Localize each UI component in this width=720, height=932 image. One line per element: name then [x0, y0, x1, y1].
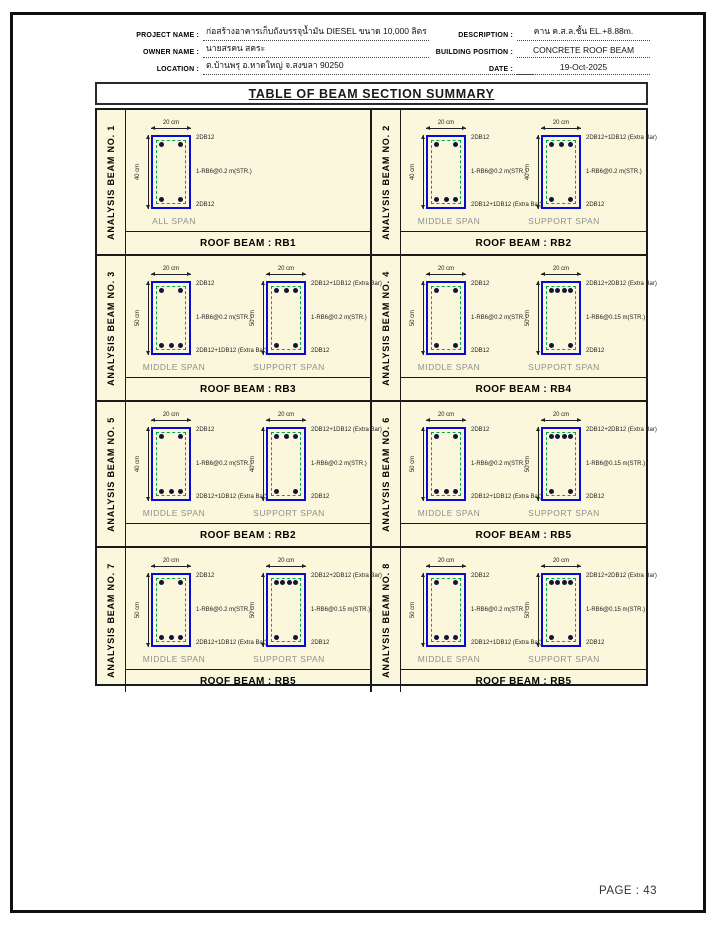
concrete-section-outline [426, 427, 466, 501]
building-position-label: BUILDING POSITION : [425, 49, 517, 58]
beam-cell-main: 20 cm 50 cm 2DB12 1-RB6@0.2 m(STR.) 2DB1… [126, 548, 370, 692]
rebar-dot [274, 635, 279, 640]
beam-section-drawing: 20 cm 50 cm 2DB12 1-RB6@0.2 m(STR.) 2DB1… [415, 411, 530, 523]
height-dim-arrow [538, 573, 539, 647]
beam-section-drawing: 20 cm 50 cm 2DB12 1-RB6@0.2 m(STR.) 2DB1… [140, 557, 255, 669]
height-dimension: 50 cm [253, 281, 265, 355]
stirrup-dashed-outline [156, 286, 186, 350]
rebar-dot [453, 288, 458, 293]
concrete-section-outline [426, 281, 466, 355]
rebar-dot [549, 142, 554, 147]
rebar-dot [178, 343, 183, 348]
top-rebar-label: 2DB12 [471, 427, 533, 434]
section-annotations: 2DB12 1-RB6@0.2 m(STR.) 2DB12+1DB12 (Ext… [196, 281, 258, 355]
bottom-rebar-dots [159, 343, 183, 348]
rebar-dot [549, 489, 554, 494]
bottom-rebar-label: 2DB12 [586, 494, 648, 501]
top-rebar-label: 2DB12+2DB12 (Extra Bar) [586, 573, 648, 580]
concrete-section-outline [151, 427, 191, 501]
stirrup-dashed-outline [431, 140, 461, 204]
sections-area: 20 cm 40 cm 2DB12 1-RB6@0.2 m(STR.) 2DB1… [126, 402, 370, 523]
width-dim-arrow [426, 566, 466, 567]
beam-cell-main: 20 cm 50 cm 2DB12 1-RB6@0.2 m(STR.) 2DB1… [126, 256, 370, 400]
rebar-dot [159, 635, 164, 640]
stirrup-label: 1-RB6@0.2 m(STR.) [471, 315, 533, 322]
beam-cell-main: 20 cm 40 cm 2DB12 1-RB6@0.2 m(STR.) 2DB1… [126, 110, 370, 254]
rebar-dot [434, 197, 439, 202]
rebar-dot [434, 288, 439, 293]
bottom-rebar-dots [549, 489, 573, 494]
height-dimension: 50 cm [138, 573, 150, 647]
rebar-dot [178, 197, 183, 202]
height-dim-label: 50 cm [250, 602, 256, 618]
width-dim-arrow [151, 566, 191, 567]
sections-area: 20 cm 50 cm 2DB12 1-RB6@0.2 m(STR.) 2DB1… [126, 256, 370, 377]
height-dimension: 50 cm [253, 573, 265, 647]
header-field-row: DESCRIPTION : คาน ค.ส.ล.ชั้น EL.+8.88m. [425, 24, 650, 41]
rebar-dot [274, 489, 279, 494]
width-dim-arrow [541, 274, 581, 275]
top-rebar-label: 2DB12 [196, 573, 258, 580]
beam-cell: ANALYSIS BEAM NO. 8 20 cm 50 cm 2DB12 1-… [372, 548, 646, 692]
rebar-dot [555, 288, 560, 293]
height-dimension: 50 cm [528, 573, 540, 647]
rebar-dot [434, 142, 439, 147]
bottom-rebar-dots [274, 343, 298, 348]
bottom-rebar-label: 2DB12 [471, 348, 533, 355]
span-label: MIDDLE SPAN [403, 654, 495, 664]
stirrup-label: 1-RB6@0.15 m(STR.) [586, 461, 648, 468]
beam-section-drawing: 20 cm 50 cm 2DB12+2DB12 (Extra Bar) 1-RB… [255, 557, 370, 669]
width-dim-label: 20 cm [541, 558, 581, 565]
beam-cell: ANALYSIS BEAM NO. 2 20 cm 40 cm 2DB12 1-… [372, 110, 646, 256]
width-dimension: 20 cm [151, 558, 191, 567]
roof-beam-label: ROOF BEAM : RB3 [200, 384, 296, 395]
date-label: DATE : [425, 66, 517, 75]
height-dimension: 40 cm [138, 427, 150, 501]
rebar-dot [169, 489, 174, 494]
width-dim-arrow [541, 566, 581, 567]
section-annotations: 2DB12 1-RB6@0.2 m(STR.) 2DB12+1DB12 (Ext… [471, 427, 533, 501]
height-dim-arrow [538, 427, 539, 501]
owner-name-label: OWNER NAME : [105, 49, 203, 58]
roof-beam-label: ROOF BEAM : RB4 [476, 384, 572, 395]
width-dimension: 20 cm [541, 120, 581, 129]
span-label: MIDDLE SPAN [403, 216, 495, 226]
width-dim-label: 20 cm [266, 412, 306, 419]
title-box: TABLE OF BEAM SECTION SUMMARY [95, 82, 648, 105]
bottom-rebar-label: 2DB12 [586, 202, 648, 209]
height-dim-label: 40 cm [410, 164, 416, 180]
span-label: MIDDLE SPAN [128, 508, 220, 518]
height-dimension: 50 cm [528, 427, 540, 501]
beam-section-drawing: 20 cm 50 cm 2DB12 1-RB6@0.2 m(STR.) 2DB1… [415, 557, 530, 669]
analysis-beam-label: ANALYSIS BEAM NO. 8 [381, 563, 391, 678]
height-dim-arrow [423, 135, 424, 209]
top-rebar-label: 2DB12+2DB12 (Extra Bar) [586, 427, 648, 434]
rebar-dot [178, 288, 183, 293]
span-label: SUPPORT SPAN [518, 508, 610, 518]
stirrup-dashed-outline [546, 286, 576, 350]
analysis-strip: ANALYSIS BEAM NO. 2 [372, 110, 401, 254]
beam-section-drawing: 20 cm 50 cm 2DB12 1-RB6@0.2 m(STR.) 2DB1… [415, 265, 530, 377]
top-rebar-label: 2DB12+1DB12 (Extra Bar) [311, 427, 373, 434]
concrete-section-outline [266, 281, 306, 355]
beam-cell-main: 20 cm 40 cm 2DB12 1-RB6@0.2 m(STR.) 2DB1… [401, 110, 646, 254]
top-rebar-dots [549, 142, 573, 147]
rebar-dot [568, 142, 573, 147]
bottom-rebar-label: 2DB12+1DB12 (Extra Bar) [196, 640, 258, 647]
top-rebar-label: 2DB12+2DB12 (Extra Bar) [311, 573, 373, 580]
height-dimension: 50 cm [138, 281, 150, 355]
beam-section-drawing: 20 cm 50 cm 2DB12+2DB12 (Extra Bar) 1-RB… [530, 265, 645, 377]
building-position-value: CONCRETE ROOF BEAM [517, 45, 650, 58]
span-label: SUPPORT SPAN [243, 362, 335, 372]
stirrup-label: 1-RB6@0.2 m(STR.) [471, 607, 533, 614]
top-rebar-label: 2DB12 [196, 427, 258, 434]
rebar-dot [293, 343, 298, 348]
width-dim-label: 20 cm [426, 558, 466, 565]
top-rebar-dots [274, 288, 298, 293]
analysis-beam-label: ANALYSIS BEAM NO. 1 [106, 125, 116, 240]
height-dim-arrow [423, 573, 424, 647]
concrete-section-outline [151, 135, 191, 209]
height-dim-arrow [423, 427, 424, 501]
concrete-section-outline [266, 427, 306, 501]
analysis-strip: ANALYSIS BEAM NO. 4 [372, 256, 401, 400]
top-rebar-label: 2DB12+1DB12 (Extra Bar) [586, 135, 648, 142]
width-dimension: 20 cm [266, 558, 306, 567]
beam-section-drawing: 20 cm 50 cm 2DB12+1DB12 (Extra Bar) 1-RB… [255, 265, 370, 377]
analysis-strip: ANALYSIS BEAM NO. 5 [97, 402, 126, 546]
stirrup-label: 1-RB6@0.2 m(STR.) [586, 169, 648, 176]
bottom-rebar-dots [549, 343, 573, 348]
beam-section-drawing: 20 cm 50 cm 2DB12+2DB12 (Extra Bar) 1-RB… [530, 411, 645, 523]
span-label: MIDDLE SPAN [128, 654, 220, 664]
bottom-rebar-label: 2DB12+1DB12 (Extra Bar) [196, 348, 258, 355]
sections-area: 20 cm 40 cm 2DB12 1-RB6@0.2 m(STR.) 2DB1… [401, 110, 646, 231]
beam-section-drawing: 20 cm 40 cm 2DB12 1-RB6@0.2 m(STR.) 2DB1… [140, 411, 255, 523]
width-dim-arrow [541, 420, 581, 421]
rebar-dot [159, 197, 164, 202]
width-dim-arrow [426, 274, 466, 275]
beam-cell: ANALYSIS BEAM NO. 4 20 cm 50 cm 2DB12 1-… [372, 256, 646, 402]
beam-cell: ANALYSIS BEAM NO. 1 20 cm 40 cm 2DB12 1-… [97, 110, 372, 256]
span-label: SUPPORT SPAN [243, 508, 335, 518]
roof-beam-row: ROOF BEAM : RB5 [126, 669, 370, 692]
analysis-beam-label: ANALYSIS BEAM NO. 4 [381, 271, 391, 386]
rebar-dot [568, 434, 573, 439]
rebar-dot [549, 343, 554, 348]
rebar-dot [274, 580, 279, 585]
sections-area: 20 cm 50 cm 2DB12 1-RB6@0.2 m(STR.) 2DB1… [401, 256, 646, 377]
width-dim-label: 20 cm [541, 412, 581, 419]
top-rebar-dots [549, 434, 573, 439]
height-dim-label: 50 cm [410, 602, 416, 618]
height-dim-arrow [148, 573, 149, 647]
height-dim-arrow [263, 281, 264, 355]
page-title: TABLE OF BEAM SECTION SUMMARY [249, 87, 495, 101]
rebar-dot [159, 434, 164, 439]
roof-beam-row: ROOF BEAM : RB2 [126, 523, 370, 546]
rebar-dot [568, 635, 573, 640]
rebar-dot [549, 635, 554, 640]
top-rebar-dots [159, 434, 183, 439]
project-name-label: PROJECT NAME : [105, 32, 203, 41]
stirrup-label: 1-RB6@0.2 m(STR.) [196, 169, 258, 176]
height-dim-label: 40 cm [525, 164, 531, 180]
roof-beam-row: ROOF BEAM : RB4 [401, 377, 646, 400]
width-dim-label: 20 cm [541, 120, 581, 127]
rebar-dot [568, 343, 573, 348]
beam-section-drawing: 20 cm 50 cm 2DB12+2DB12 (Extra Bar) 1-RB… [530, 557, 645, 669]
roof-beam-row: ROOF BEAM : RB5 [401, 669, 646, 692]
span-label: SUPPORT SPAN [518, 216, 610, 226]
roof-beam-label: ROOF BEAM : RB5 [476, 530, 572, 541]
height-dim-arrow [423, 281, 424, 355]
stirrup-dashed-outline [156, 578, 186, 642]
bottom-rebar-label: 2DB12 [586, 640, 648, 647]
bottom-rebar-dots [159, 635, 183, 640]
bottom-rebar-dots [434, 489, 458, 494]
width-dim-arrow [541, 128, 581, 129]
beam-cell: ANALYSIS BEAM NO. 3 20 cm 50 cm 2DB12 1-… [97, 256, 372, 402]
top-rebar-dots [159, 288, 183, 293]
bottom-rebar-label: 2DB12 [586, 348, 648, 355]
stirrup-dashed-outline [271, 286, 301, 350]
stirrup-dashed-outline [431, 432, 461, 496]
analysis-beam-label: ANALYSIS BEAM NO. 3 [106, 271, 116, 386]
top-rebar-dots [274, 580, 298, 585]
width-dimension: 20 cm [426, 412, 466, 421]
top-rebar-dots [159, 142, 183, 147]
stirrup-label: 1-RB6@0.15 m(STR.) [586, 607, 648, 614]
stirrup-dashed-outline [271, 432, 301, 496]
width-dimension: 20 cm [426, 120, 466, 129]
beam-cell: ANALYSIS BEAM NO. 7 20 cm 50 cm 2DB12 1-… [97, 548, 372, 692]
top-rebar-dots [274, 434, 298, 439]
project-name-value: ก่อสร้างอาคารเก็บถังบรรจุน้ำมัน DIESEL ข… [203, 24, 429, 41]
roof-beam-label: ROOF BEAM : RB5 [476, 676, 572, 687]
stirrup-dashed-outline [271, 578, 301, 642]
concrete-section-outline [541, 573, 581, 647]
roof-beam-label: ROOF BEAM : RB5 [200, 676, 296, 687]
section-annotations: 2DB12+2DB12 (Extra Bar) 1-RB6@0.15 m(STR… [311, 573, 373, 647]
date-value: 19-Oct-2025 [517, 62, 650, 75]
rebar-dot [434, 343, 439, 348]
bottom-rebar-dots [549, 635, 573, 640]
stirrup-label: 1-RB6@0.2 m(STR.) [311, 461, 373, 468]
width-dim-label: 20 cm [151, 558, 191, 565]
section-annotations: 2DB12 1-RB6@0.2 m(STR.) 2DB12+1DB12 (Ext… [196, 573, 258, 647]
top-rebar-label: 2DB12 [471, 135, 533, 142]
height-dim-arrow [148, 281, 149, 355]
rebar-dot [453, 197, 458, 202]
width-dim-arrow [266, 274, 306, 275]
header-field-row: DATE : 19-Oct-2025 [425, 58, 650, 75]
rebar-dot [159, 288, 164, 293]
roof-beam-label: ROOF BEAM : RB2 [200, 530, 296, 541]
bottom-rebar-dots [549, 197, 573, 202]
rebar-dot [453, 142, 458, 147]
rebar-dot [159, 142, 164, 147]
bottom-rebar-label: 2DB12+1DB12 (Extra Bar) [196, 494, 258, 501]
height-dim-arrow [148, 427, 149, 501]
stirrup-label: 1-RB6@0.2 m(STR.) [196, 607, 258, 614]
rebar-dot [178, 635, 183, 640]
rebar-dot [178, 142, 183, 147]
stirrup-label: 1-RB6@0.2 m(STR.) [196, 461, 258, 468]
rebar-dot [562, 580, 567, 585]
width-dim-arrow [266, 566, 306, 567]
top-rebar-dots [434, 142, 458, 147]
span-label: ALL SPAN [128, 216, 220, 226]
beam-cell-main: 20 cm 40 cm 2DB12 1-RB6@0.2 m(STR.) 2DB1… [126, 402, 370, 546]
owner-name-value: นายสรคน สคระ [203, 41, 429, 58]
width-dim-label: 20 cm [266, 266, 306, 273]
header-field-row: BUILDING POSITION : CONCRETE ROOF BEAM [425, 41, 650, 58]
rebar-dot [444, 197, 449, 202]
width-dim-label: 20 cm [266, 558, 306, 565]
analysis-strip: ANALYSIS BEAM NO. 6 [372, 402, 401, 546]
rebar-dot [169, 635, 174, 640]
bottom-rebar-label: 2DB12 [196, 202, 258, 209]
location-label: LOCATION : [105, 66, 203, 75]
top-rebar-dots [434, 580, 458, 585]
rebar-dot [549, 197, 554, 202]
rebar-dot [568, 489, 573, 494]
bottom-rebar-dots [274, 489, 298, 494]
width-dimension: 20 cm [541, 412, 581, 421]
width-dimension: 20 cm [151, 412, 191, 421]
rebar-dot [549, 580, 554, 585]
rebar-dot [434, 434, 439, 439]
bottom-rebar-label: 2DB12 [311, 494, 373, 501]
height-dim-label: 50 cm [135, 602, 141, 618]
width-dim-arrow [151, 128, 191, 129]
rebar-dot [287, 580, 292, 585]
bottom-rebar-dots [434, 635, 458, 640]
section-annotations: 2DB12+1DB12 (Extra Bar) 1-RB6@0.2 m(STR.… [311, 427, 373, 501]
analysis-strip: ANALYSIS BEAM NO. 1 [97, 110, 126, 254]
top-rebar-dots [434, 288, 458, 293]
width-dim-arrow [151, 420, 191, 421]
analysis-strip: ANALYSIS BEAM NO. 3 [97, 256, 126, 400]
bottom-rebar-dots [434, 197, 458, 202]
rebar-dot [444, 489, 449, 494]
rebar-dot [453, 635, 458, 640]
height-dim-arrow [263, 427, 264, 501]
top-rebar-label: 2DB12 [471, 281, 533, 288]
beam-cell: ANALYSIS BEAM NO. 6 20 cm 50 cm 2DB12 1-… [372, 402, 646, 548]
top-rebar-dots [549, 288, 573, 293]
stirrup-dashed-outline [546, 432, 576, 496]
concrete-section-outline [426, 573, 466, 647]
sections-area: 20 cm 50 cm 2DB12 1-RB6@0.2 m(STR.) 2DB1… [401, 548, 646, 669]
description-value: คาน ค.ส.ล.ชั้น EL.+8.88m. [517, 24, 650, 41]
top-rebar-label: 2DB12+1DB12 (Extra Bar) [311, 281, 373, 288]
roof-beam-row: ROOF BEAM : RB2 [401, 231, 646, 254]
height-dim-arrow [538, 281, 539, 355]
description-label: DESCRIPTION : [425, 32, 517, 41]
height-dim-label: 40 cm [135, 456, 141, 472]
stirrup-label: 1-RB6@0.15 m(STR.) [311, 607, 373, 614]
sections-area: 20 cm 40 cm 2DB12 1-RB6@0.2 m(STR.) 2DB1… [126, 110, 370, 231]
span-label: MIDDLE SPAN [403, 362, 495, 372]
rebar-dot [453, 489, 458, 494]
roof-beam-row: ROOF BEAM : RB1 [126, 231, 370, 254]
rebar-dot [568, 197, 573, 202]
width-dim-label: 20 cm [151, 412, 191, 419]
beam-summary-table: ANALYSIS BEAM NO. 1 20 cm 40 cm 2DB12 1-… [95, 108, 648, 686]
rebar-dot [178, 489, 183, 494]
stirrup-label: 1-RB6@0.15 m(STR.) [586, 315, 648, 322]
top-rebar-dots [159, 580, 183, 585]
roof-beam-row: ROOF BEAM : RB3 [126, 377, 370, 400]
stirrup-label: 1-RB6@0.2 m(STR.) [311, 315, 373, 322]
section-annotations: 2DB12+2DB12 (Extra Bar) 1-RB6@0.15 m(STR… [586, 281, 648, 355]
height-dim-label: 50 cm [250, 310, 256, 326]
roof-beam-row: ROOF BEAM : RB5 [401, 523, 646, 546]
width-dimension: 20 cm [266, 266, 306, 275]
width-dim-label: 20 cm [151, 266, 191, 273]
bottom-rebar-label: 2DB12 [311, 640, 373, 647]
span-label: SUPPORT SPAN [518, 654, 610, 664]
stirrup-dashed-outline [431, 578, 461, 642]
rebar-dot [434, 489, 439, 494]
span-label: SUPPORT SPAN [243, 654, 335, 664]
stirrup-dashed-outline [546, 140, 576, 204]
height-dim-label: 40 cm [135, 164, 141, 180]
height-dimension: 40 cm [528, 135, 540, 209]
rebar-dot [169, 343, 174, 348]
beam-cell-main: 20 cm 50 cm 2DB12 1-RB6@0.2 m(STR.) 2DB1… [401, 548, 646, 692]
beam-cell-main: 20 cm 50 cm 2DB12 1-RB6@0.2 m(STR.) 2DB1… [401, 256, 646, 400]
height-dim-label: 50 cm [135, 310, 141, 326]
width-dim-arrow [266, 420, 306, 421]
concrete-section-outline [266, 573, 306, 647]
analysis-beam-label: ANALYSIS BEAM NO. 7 [106, 563, 116, 678]
rebar-dot [555, 580, 560, 585]
rebar-dot [568, 580, 573, 585]
sections-area: 20 cm 50 cm 2DB12 1-RB6@0.2 m(STR.) 2DB1… [401, 402, 646, 523]
span-label: MIDDLE SPAN [403, 508, 495, 518]
beam-section-drawing: 20 cm 50 cm 2DB12 1-RB6@0.2 m(STR.) 2DB1… [140, 265, 255, 377]
beam-cell: ANALYSIS BEAM NO. 5 20 cm 40 cm 2DB12 1-… [97, 402, 372, 548]
section-annotations: 2DB12 1-RB6@0.2 m(STR.) 2DB12 [196, 135, 258, 209]
roof-beam-label: ROOF BEAM : RB1 [200, 238, 296, 249]
span-label: MIDDLE SPAN [128, 362, 220, 372]
stirrup-label: 1-RB6@0.2 m(STR.) [471, 461, 533, 468]
rebar-dot [284, 288, 289, 293]
width-dimension: 20 cm [266, 412, 306, 421]
rebar-dot [562, 434, 567, 439]
stirrup-dashed-outline [156, 432, 186, 496]
section-annotations: 2DB12+1DB12 (Extra Bar) 1-RB6@0.2 m(STR.… [311, 281, 373, 355]
bottom-rebar-label: 2DB12+1DB12 (Extra Bar) [471, 202, 533, 209]
rebar-dot [284, 434, 289, 439]
rebar-dot [568, 288, 573, 293]
top-rebar-label: 2DB12 [196, 135, 258, 142]
width-dim-label: 20 cm [426, 120, 466, 127]
rebar-dot [159, 489, 164, 494]
analysis-strip: ANALYSIS BEAM NO. 7 [97, 548, 126, 692]
rebar-dot [293, 635, 298, 640]
beam-section-drawing: 20 cm 40 cm 2DB12 1-RB6@0.2 m(STR.) 2DB1… [140, 119, 255, 231]
width-dimension: 20 cm [541, 558, 581, 567]
concrete-section-outline [151, 573, 191, 647]
analysis-beam-label: ANALYSIS BEAM NO. 6 [381, 417, 391, 532]
